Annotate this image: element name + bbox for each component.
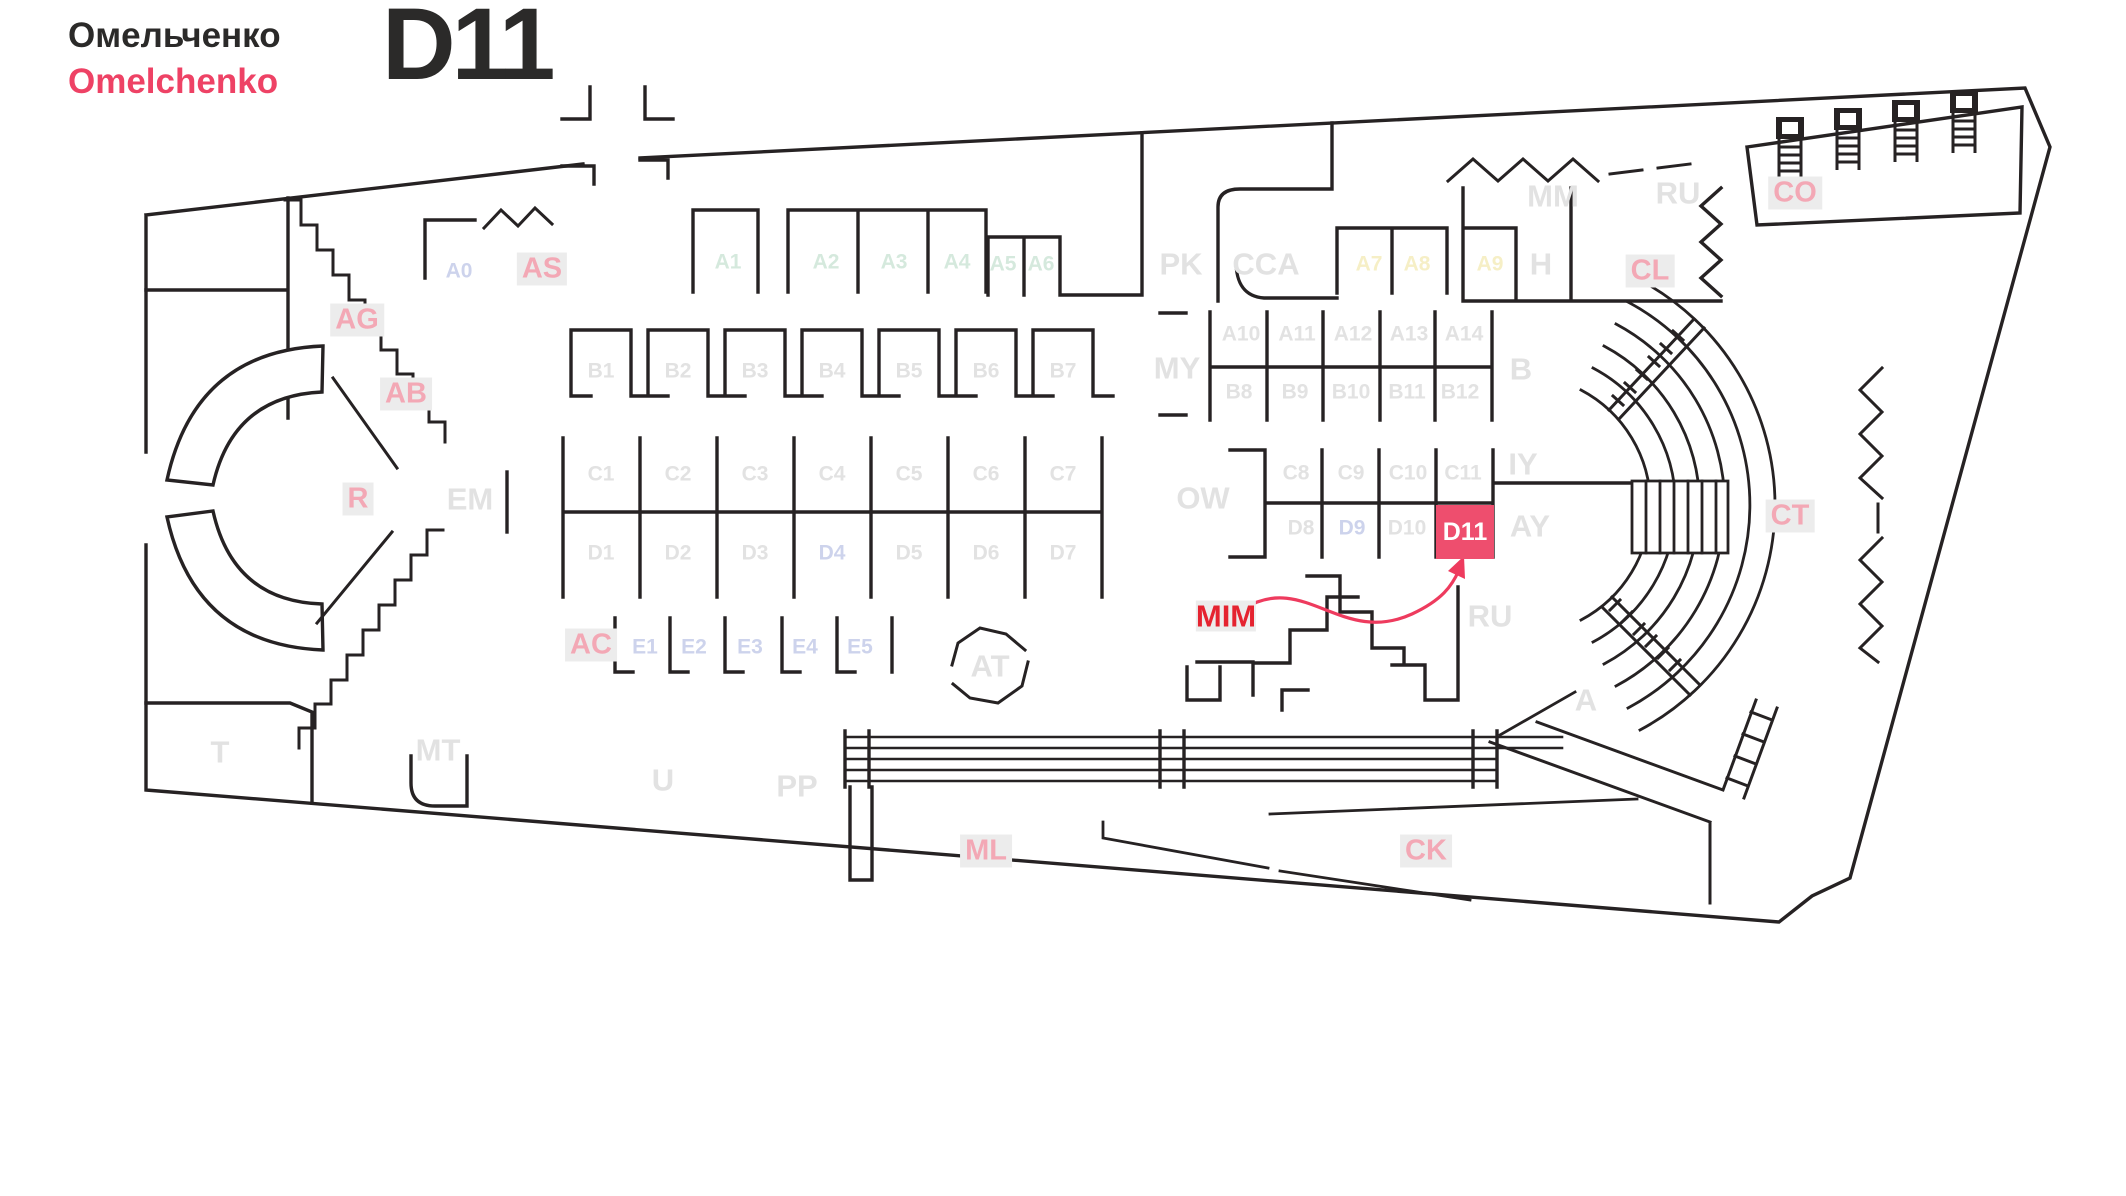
label-r: R [343,483,374,516]
label-ck: CK [1400,835,1452,868]
label-b11: B11 [1388,382,1425,403]
label-a11: A11 [1278,324,1315,345]
label-b2: B2 [665,361,692,382]
label-ow: OW [1176,483,1229,514]
label-c8: C8 [1283,463,1310,484]
label-c1: C1 [588,464,615,485]
label-d2: D2 [665,543,692,564]
booth-d11-highlight: D11 [1436,505,1494,559]
label-b8: B8 [1226,382,1253,403]
floorplan-page: Омельченко Omelchenko D11 [0,0,2126,1196]
label-my: MY [1154,353,1201,384]
label-a8: A8 [1404,254,1431,275]
label-b-zone: B [1510,354,1532,385]
label-ag: AG [330,304,384,337]
label-e5: E5 [847,637,873,658]
label-a10: A10 [1222,324,1261,345]
label-d9: D9 [1339,518,1366,539]
label-e3: E3 [737,637,763,658]
label-t: T [211,737,230,768]
label-c10: C10 [1389,463,1428,484]
label-em: EM [447,484,494,515]
label-ab: AB [380,378,432,411]
label-ay: AY [1510,511,1550,542]
label-d5: D5 [896,543,923,564]
label-at: AT [970,651,1009,682]
label-d4: D4 [819,543,846,564]
label-b6: B6 [973,361,1000,382]
brand-logo-en: Omelchenko [68,62,278,102]
label-b3: B3 [742,361,769,382]
label-a7: A7 [1356,254,1383,275]
label-a0: A0 [446,261,473,282]
label-c11: C11 [1444,463,1481,484]
label-c6: C6 [973,464,1000,485]
label-b4: B4 [819,361,846,382]
label-a13: A13 [1390,324,1429,345]
label-a6: A6 [1028,254,1055,275]
label-as: AS [517,253,567,286]
label-cca: CCA [1232,249,1299,280]
label-u: U [652,765,674,796]
plan-labels: A0ASA1A2A3A4A5A6PKCCAA7A8A9HMMRUCOCLAGAB… [0,0,2126,1196]
label-d6: D6 [973,543,1000,564]
brand-logo-ru: Омельченко [68,16,281,56]
label-a12: A12 [1334,324,1373,345]
label-e2: E2 [681,637,707,658]
label-c9: C9 [1338,463,1365,484]
label-pk: PK [1159,249,1202,280]
label-ru-mid: RU [1468,601,1513,632]
label-h: H [1530,249,1552,280]
label-ru-top: RU [1656,178,1701,209]
label-ml: ML [960,835,1012,868]
label-ac: AC [565,629,617,662]
label-e4: E4 [792,637,818,658]
label-d10: D10 [1388,518,1427,539]
label-a4: A4 [944,252,971,273]
label-a5: A5 [990,254,1017,275]
label-c5: C5 [896,464,923,485]
label-c7: C7 [1050,464,1077,485]
annotation-mim: MIM [1196,601,1256,632]
label-iy: IY [1508,449,1537,480]
label-a2: A2 [813,252,840,273]
label-c4: C4 [819,464,846,485]
label-a14: A14 [1445,324,1484,345]
label-a-zone: A [1575,685,1597,716]
label-b1: B1 [588,361,615,382]
label-d7: D7 [1050,543,1077,564]
label-e1: E1 [632,637,658,658]
label-b9: B9 [1282,382,1309,403]
label-a9: A9 [1477,254,1504,275]
label-b12: B12 [1441,382,1480,403]
label-cl: CL [1626,255,1675,288]
label-a3: A3 [881,252,908,273]
label-ct: CT [1766,500,1815,533]
label-d8: D8 [1288,518,1315,539]
label-a1: A1 [715,252,742,273]
label-c3: C3 [742,464,769,485]
label-co: CO [1768,177,1822,210]
label-c2: C2 [665,464,692,485]
label-b10: B10 [1332,382,1371,403]
label-pp: PP [776,771,817,802]
label-d3: D3 [742,543,769,564]
page-title-booth-code: D11 [382,0,552,103]
label-b5: B5 [896,361,923,382]
label-mt: MT [416,735,461,766]
label-b7: B7 [1050,361,1077,382]
label-d1: D1 [588,543,615,564]
label-mm: MM [1527,181,1579,212]
